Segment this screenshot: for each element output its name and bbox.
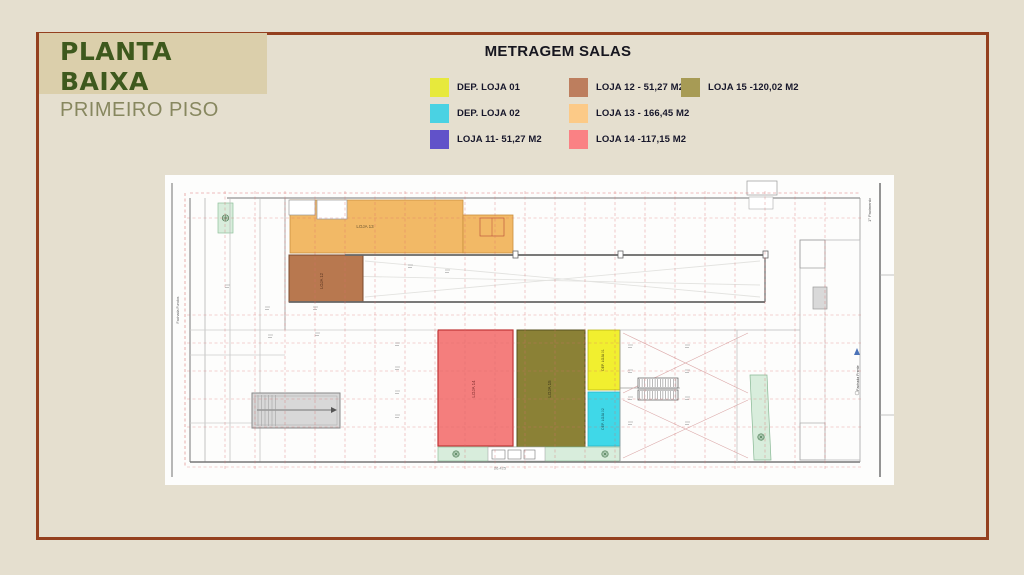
color-swatch [569,104,588,123]
legend-item-label: LOJA 12 - 51,27 M2 [596,82,684,93]
legend-item-label: LOJA 13 - 166,45 M2 [596,108,689,119]
room-label-loja14: LOJA 14 [471,380,476,398]
room-label-loja12: LOJA 12 [319,272,324,289]
color-swatch [430,130,449,149]
legend-item-loja-15: LOJA 15 -120,02 M2 [681,78,799,97]
room-label-dep01: DEP. LOJA 01 [601,349,605,371]
annotation-fachada-frente: Fachada Frente [856,365,860,390]
room-label-loja15: LOJA 15 [547,380,552,398]
floor-plan-image: LOJA 13 LOJA 12 LOJA 14 LOJA 15 DEP. LOJ… [165,175,894,485]
color-swatch [569,78,588,97]
legend-item-loja-11: LOJA 11- 51,27 M2 [430,130,542,149]
color-swatch [569,130,588,149]
region-loja12 [289,255,363,302]
annotation-fachada-fundos: Fachada Fundos [176,296,180,323]
page-title: PLANTA BAIXA [60,37,267,97]
color-swatch [681,78,700,97]
floor-plan-svg: LOJA 13 LOJA 12 LOJA 14 LOJA 15 DEP. LOJ… [165,175,894,485]
legend-item-dep-loja-01: DEP. LOJA 01 [430,78,542,97]
legend-item-label: DEP. LOJA 02 [457,108,520,119]
stairs [638,378,678,400]
annotation-pavimento: 1° Pavimento [867,197,872,222]
page-subtitle: PRIMEIRO PISO [60,98,267,122]
room-label-loja13: LOJA 13 [356,224,374,229]
legend-item-label: LOJA 14 -117,15 M2 [596,134,686,145]
legend-item-label: LOJA 15 -120,02 M2 [708,82,799,93]
corridor-diagonals [295,261,760,297]
slide: { "page": { "background": "#e5dfcf", "fr… [0,0,1024,575]
legend-title: METRAGEM SALAS [397,43,719,60]
legend-column-1: DEP. LOJA 01 DEP. LOJA 02 LOJA 11- 51,27… [430,78,542,156]
legend-column-2: LOJA 12 - 51,27 M2 LOJA 13 - 166,45 M2 L… [569,78,689,156]
ramp [252,393,340,428]
room-label-dep02: DEP. LOJA 02 [601,408,605,430]
title-box: PLANTA BAIXA PRIMEIRO PISO [39,33,267,94]
legend-item-label: LOJA 11- 51,27 M2 [457,134,542,145]
legend-column-3: LOJA 15 -120,02 M2 [681,78,799,104]
legend-item-label: DEP. LOJA 01 [457,82,520,93]
north-arrow-icon [854,348,860,355]
legend-item-loja-12: LOJA 12 - 51,27 M2 [569,78,689,97]
color-swatch [430,104,449,123]
annotation-bottom-dimension: 26.425 [494,466,507,471]
legend-item-loja-14: LOJA 14 -117,15 M2 [569,130,689,149]
legend-item-dep-loja-02: DEP. LOJA 02 [430,104,542,123]
legend-item-loja-13: LOJA 13 - 166,45 M2 [569,104,689,123]
color-swatch [430,78,449,97]
